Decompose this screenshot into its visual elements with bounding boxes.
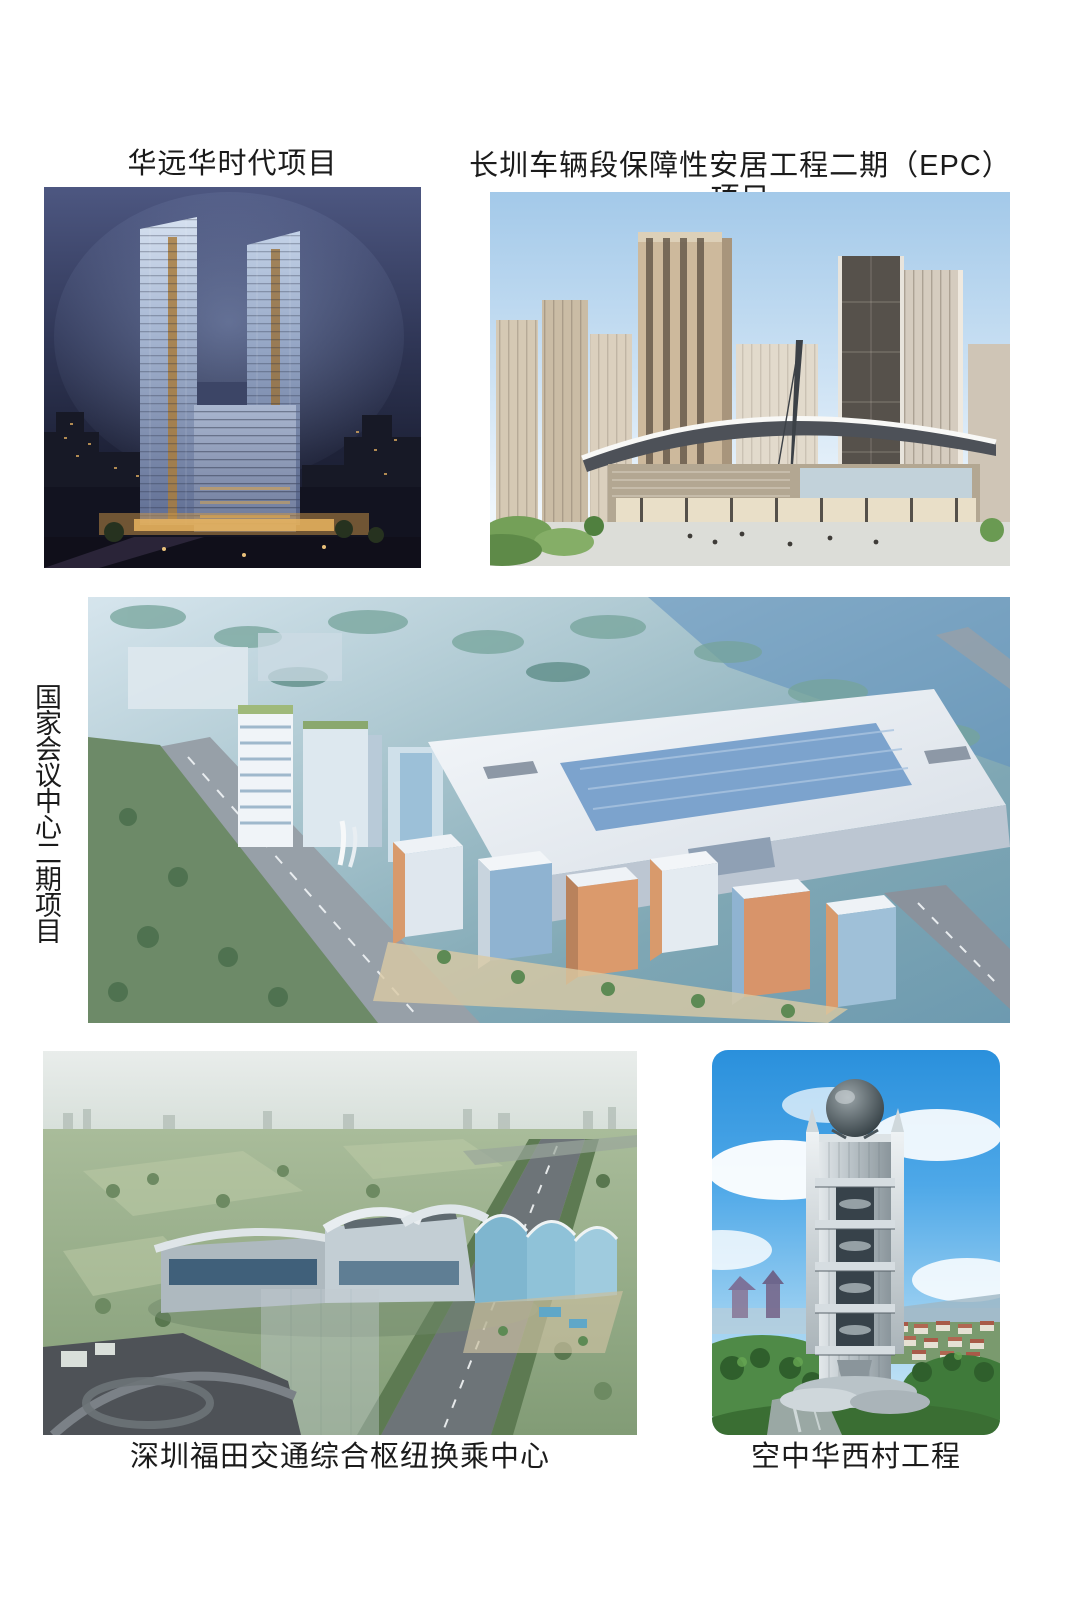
caption-huayuan-project: 华远华时代项目 [44,148,421,181]
photo-convention-center-aerial [88,597,1010,1023]
brochure-page: 华远华时代项目 [0,0,1080,1620]
caption-huaxi-village: 空中华西村工程 [712,1441,1000,1474]
front-midrise-block [194,405,296,532]
left-tower [140,217,197,525]
hazy-sky [43,1051,637,1141]
street-base [44,537,421,568]
block-5 [732,879,810,1005]
photo-huayuan-twin-towers [44,187,421,568]
photo-huaxi-sky-tower [712,1050,1000,1435]
block-1 [393,834,463,945]
block-4 [650,851,718,961]
podium-lights [99,513,369,535]
caption-futian-hub: 深圳福田交通综合枢纽换乘中心 [43,1441,637,1474]
photo-futian-transport-hub [43,1051,637,1435]
caption-national-convention-center: 国家会议中心二期项目 [32,683,59,943]
block-3 [566,867,638,985]
residential-towers-illustration [490,192,1010,566]
photo-changzhen-residential [490,192,1010,566]
transport-hub-illustration [43,1051,637,1435]
night-towers-illustration [44,187,421,568]
block-6 [826,895,896,1015]
podium-building [608,464,980,522]
block-2 [478,851,552,969]
terminal-glass-vaults [475,1215,617,1303]
terminal-center-hall [325,1209,487,1303]
convention-center-illustration [88,597,1010,1023]
sky-tower-illustration [712,1050,1000,1435]
